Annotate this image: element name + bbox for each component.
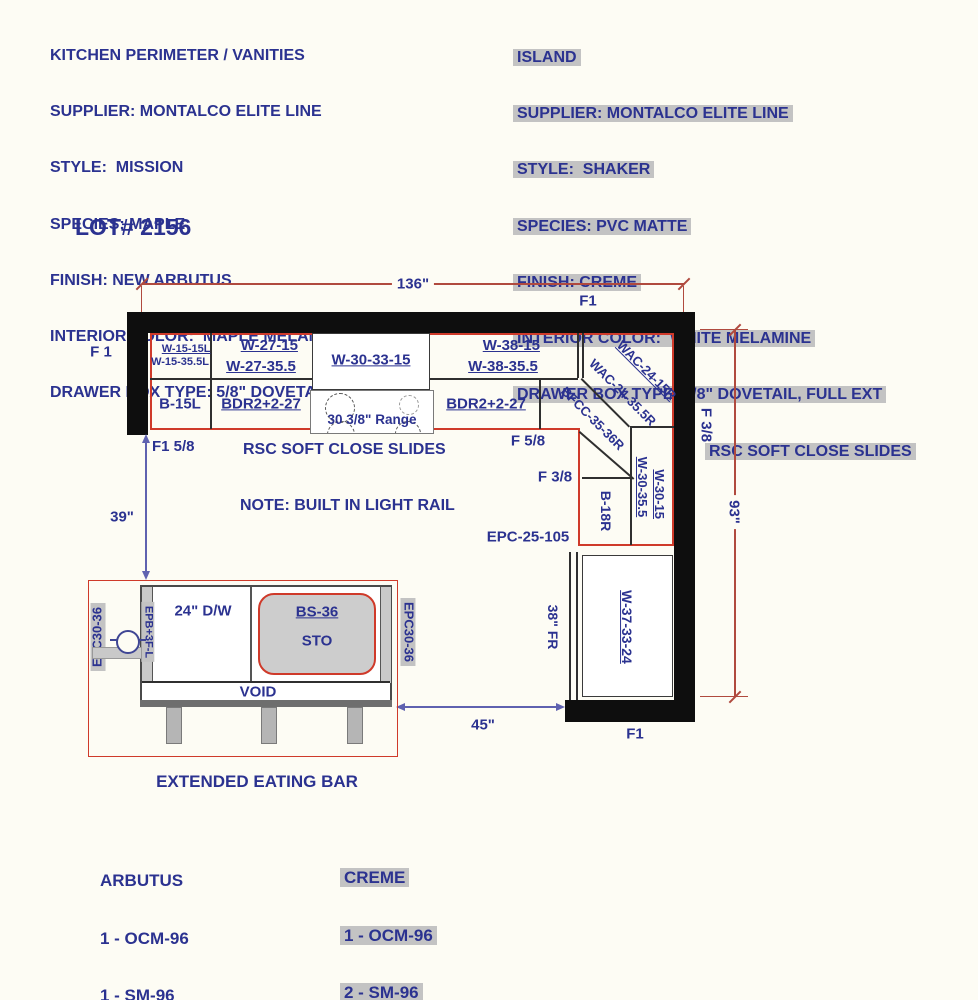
arbutus-list: ARBUTUS 1 - OCM-96 1 - SM-96 2 - SF-6-96… <box>100 833 252 1000</box>
epb-panel-label: EPB+3F-L <box>142 602 155 662</box>
void-divider <box>142 681 390 683</box>
eating-bar-caption: EXTENDED EATING BAR <box>156 772 358 792</box>
dim-ext-line <box>683 286 684 312</box>
lot-number: LOT# 2156 <box>75 214 191 240</box>
dim-line-left <box>145 443 147 573</box>
island-leg <box>166 707 182 744</box>
wall-top <box>127 312 695 333</box>
fridge-panel-line <box>569 552 571 700</box>
dishwasher-label: 24" D/W <box>174 602 231 619</box>
list-item: 1 - OCM-96 <box>100 928 252 949</box>
dim-ext-line <box>700 329 748 330</box>
list-title: CREME <box>340 867 454 888</box>
floor-label-f-38-inner: F 3/8 <box>538 468 572 485</box>
label-epc-25-105: EPC-25-105 <box>487 528 570 545</box>
spec-line: KITCHEN PERIMETER / VANITIES <box>50 46 455 66</box>
island-divider <box>250 587 252 681</box>
dim-top-value: 136" <box>392 275 434 292</box>
cabinet-label-w15: W-15-15LW-15-35.5L <box>150 330 211 382</box>
cabinet-label-hood: W-30-33-15 <box>332 351 411 368</box>
spec-line: RSC SOFT CLOSE SLIDES <box>705 442 916 462</box>
range-label: 30 3/8" Range <box>328 412 417 428</box>
cabinet-divider <box>630 426 674 428</box>
arrow-up-icon <box>142 434 150 443</box>
dim-bottom-value: 45" <box>471 716 495 733</box>
dim-line-bottom <box>404 706 558 708</box>
arrow-down-icon <box>142 571 150 580</box>
spec-line: NOTE: BUILT IN LIGHT RAIL <box>240 496 455 516</box>
dim-ext-line <box>700 696 748 697</box>
countertop-edge <box>578 544 674 546</box>
floor-label-f1-top: F1 <box>579 292 597 309</box>
void-label: VOID <box>240 683 277 700</box>
island-leg <box>261 707 277 744</box>
spec-line: SUPPLIER: MONTALCO ELITE LINE <box>513 104 916 124</box>
spec-line: RSC SOFT CLOSE SLIDES <box>243 440 455 460</box>
dim-left-value: 39" <box>110 508 134 525</box>
sto-label: STO <box>302 632 333 649</box>
bs36-label: BS-36 <box>296 603 339 620</box>
cabinet-label-bdr-right: BDR2+2-27 <box>446 395 526 412</box>
list-item: 1 - SM-96 <box>100 985 252 1000</box>
floor-label-f1-bottom: F1 <box>626 725 644 742</box>
island-leg <box>347 707 363 744</box>
list-title: ARBUTUS <box>100 870 252 891</box>
arrow-right-icon <box>556 703 565 711</box>
creme-list: CREME 1 - OCM-96 2 - SM-96 1 - BM-96 2 -… <box>340 830 454 1000</box>
floor-label-f-38-wall: F 3/8 <box>697 408 714 442</box>
wall-bottom <box>565 700 695 722</box>
kitchen-plan-drawing: KITCHEN PERIMETER / VANITIES SUPPLIER: M… <box>0 0 978 1000</box>
floor-label-f1-left: F 1 <box>90 343 112 360</box>
plumbing-icon <box>116 630 140 654</box>
dim-right-value: 93" <box>725 495 742 529</box>
cabinet-label-w30: W-30-15W-30-35.5 <box>617 455 685 519</box>
cabinet-label-b18: B-18R <box>598 491 614 531</box>
floor-label-f1-58: F1 5/8 <box>152 438 195 455</box>
spec-line: STYLE: MISSION <box>50 158 455 178</box>
island-end-panel-right <box>380 587 391 683</box>
dim-ext-line <box>141 286 142 312</box>
epc-label-right: EPC30-36 <box>401 598 416 666</box>
island-base-rail <box>140 700 392 707</box>
epc-label-left: EPC30-36 <box>91 603 106 671</box>
cabinet-divider <box>582 333 584 378</box>
fridge-label: 38" FR <box>545 605 561 650</box>
spec-line: SUPPLIER: MONTALCO ELITE LINE <box>50 102 455 122</box>
cabinet-label-w38: W-38-15W-38-35.5 <box>466 314 540 398</box>
cabinet-label-w27: W-27-15W-27-35.5 <box>224 314 298 398</box>
countertop-edge <box>578 428 580 546</box>
cabinet-label-w37: W-37-33-24 <box>619 590 635 664</box>
list-item: 2 - SM-96 <box>340 982 454 1000</box>
cabinet-label-b15: B-15L <box>159 395 201 412</box>
spec-line: ISLAND <box>513 48 916 68</box>
list-item: 1 - OCM-96 <box>340 925 454 946</box>
wall-left <box>127 312 148 435</box>
cabinet-label-bdr-left: BDR2+2-27 <box>221 395 301 412</box>
cabinet-divider <box>577 333 579 378</box>
spec-line: SPECIES: PVC MATTE <box>513 217 916 237</box>
spec-line: STYLE: SHAKER <box>513 160 916 180</box>
fridge-panel-line <box>576 552 578 700</box>
floor-label-f-58: F 5/8 <box>511 432 545 449</box>
